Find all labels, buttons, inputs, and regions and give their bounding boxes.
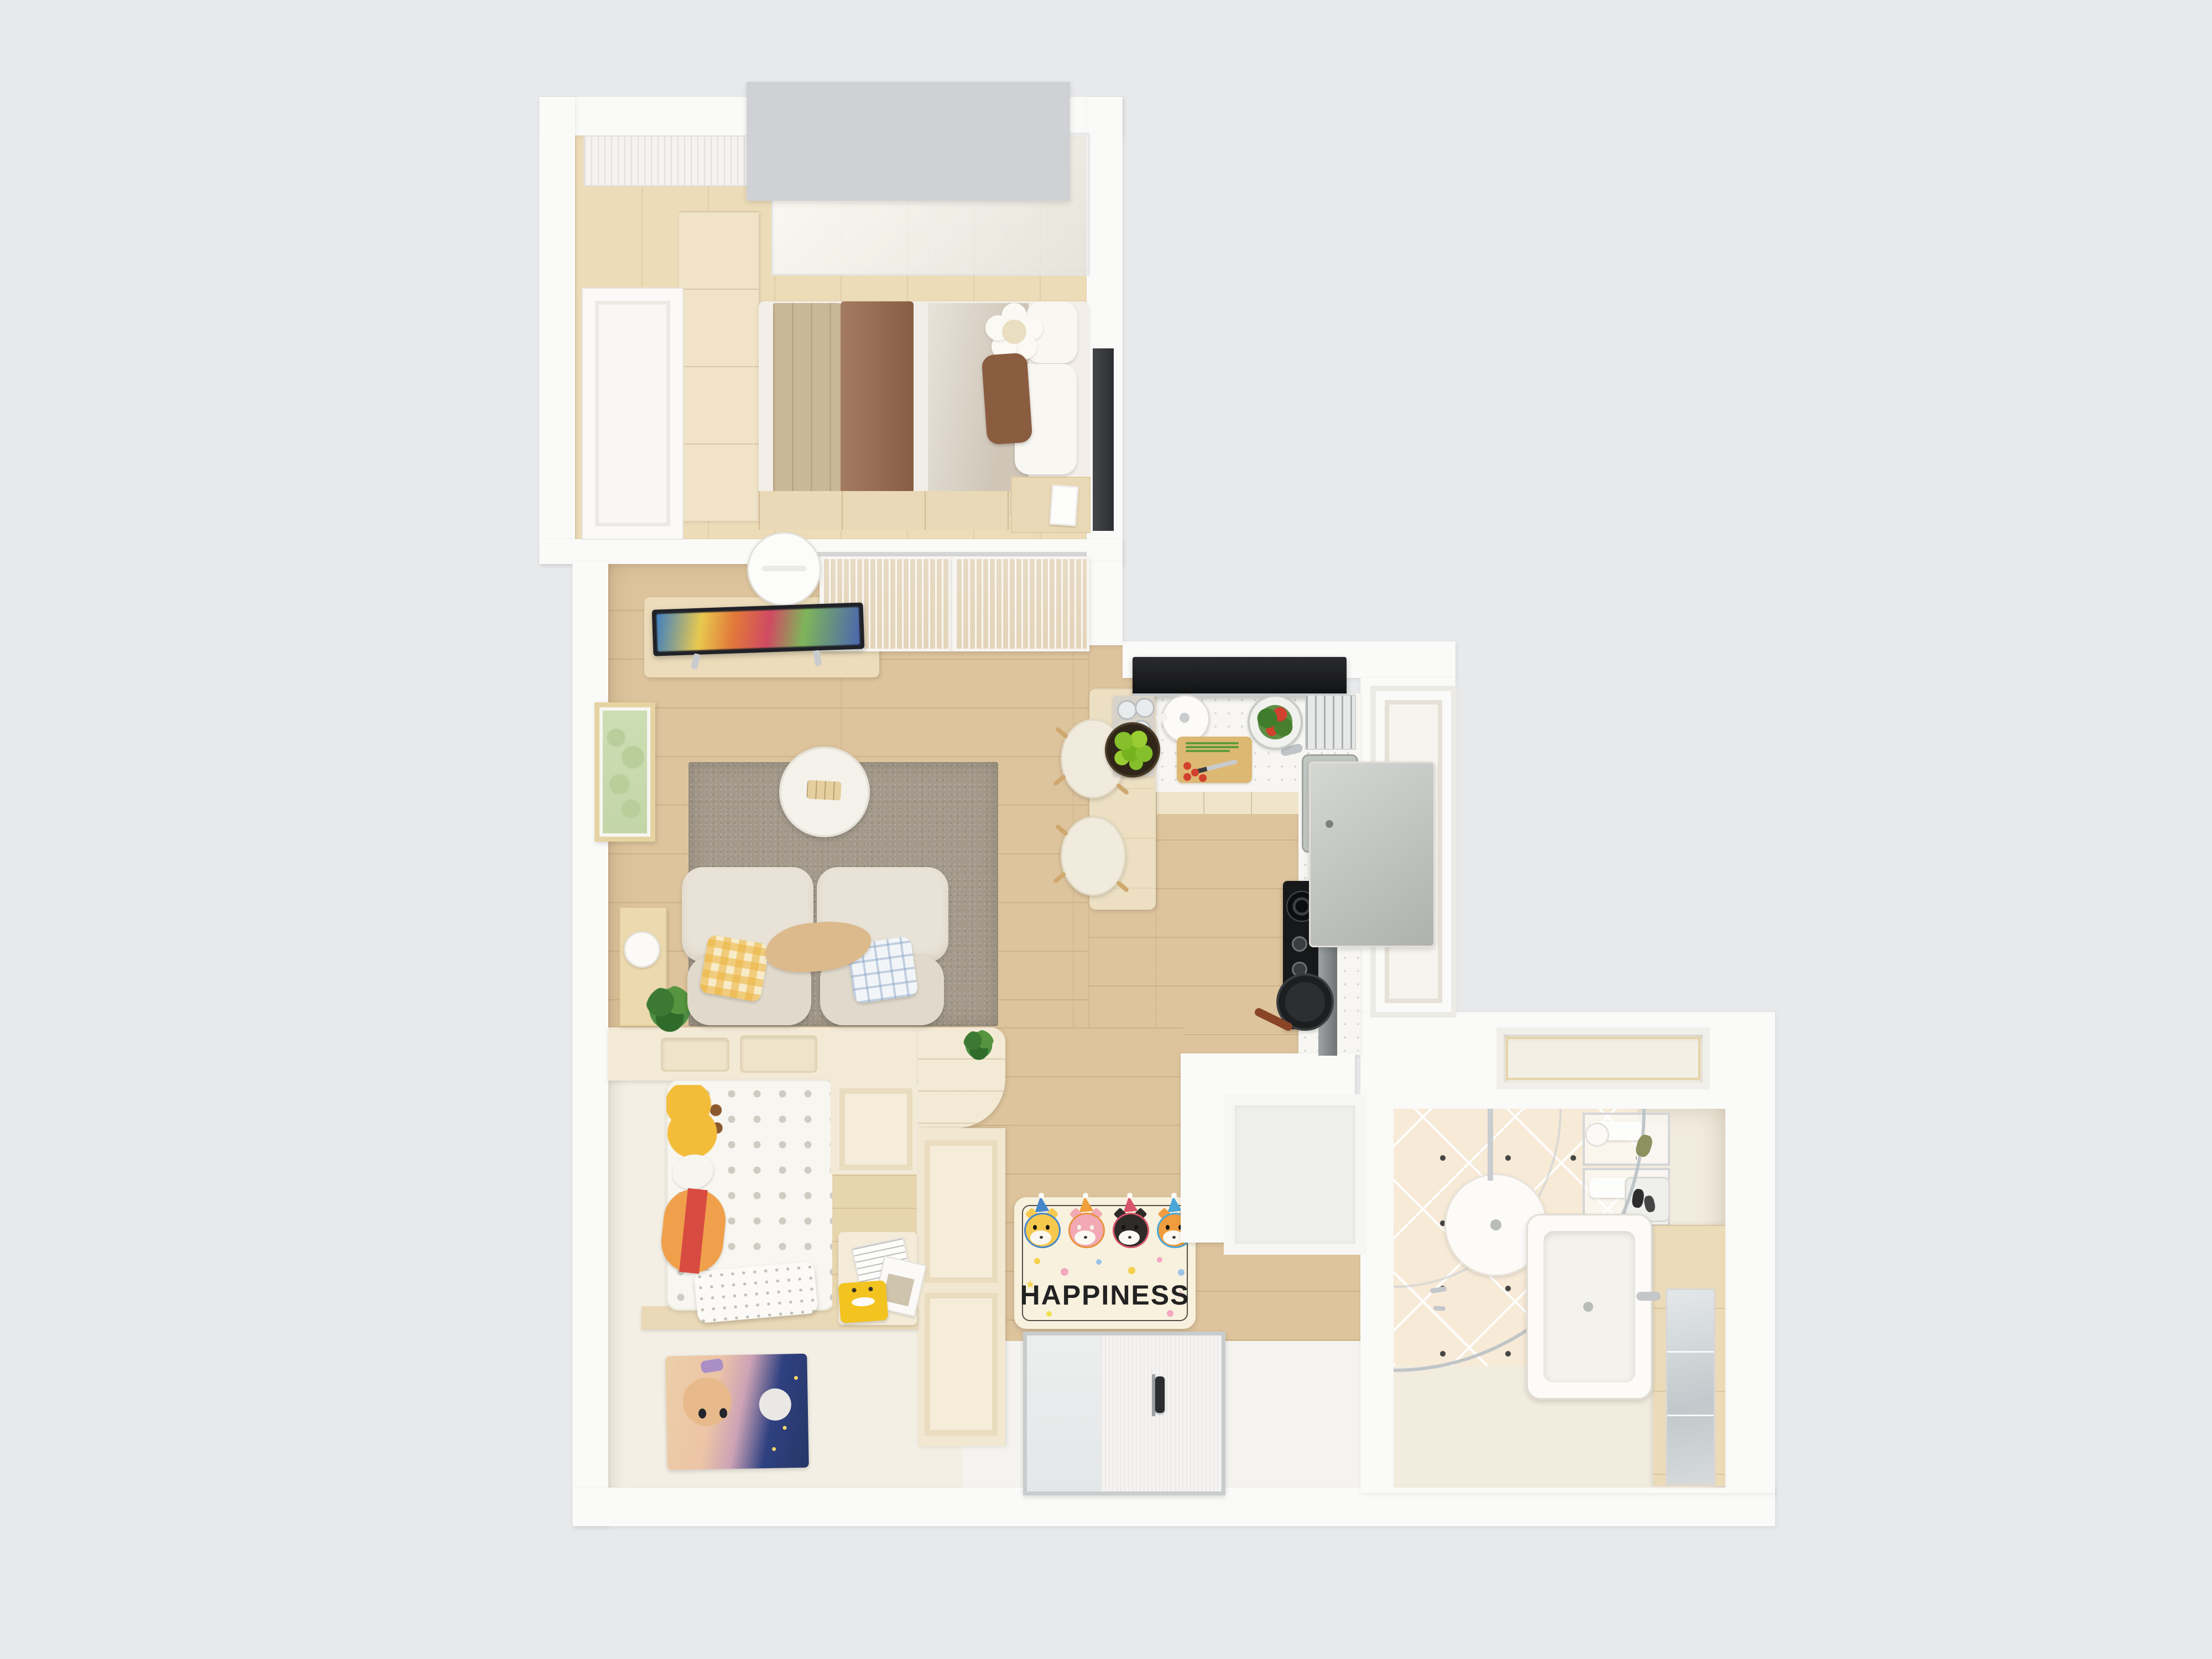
green-apples [1110,728,1155,772]
basin-drain [1583,1302,1593,1312]
confetti-dot [1096,1259,1102,1265]
bed-foot-drawers [759,491,1010,530]
cutting-board [1177,737,1252,783]
dish-rack [1305,695,1356,750]
bedroom-wall-tv [1093,348,1114,531]
skylight-rim [1506,1037,1700,1080]
scallion [1186,742,1239,744]
peninsula-panel [1224,1094,1366,1255]
shower-pipe [1488,1109,1493,1181]
magazine-photo [882,1274,914,1307]
bedside-cabinet [831,1079,917,1175]
cat-eye [1046,1225,1050,1230]
door-handle [1155,1376,1165,1413]
cat-nose [1128,1236,1131,1239]
cat-nose [1172,1236,1176,1239]
ac-vent [583,135,774,186]
cooktop-knob [1292,936,1307,952]
mat-cat-icon [1112,1205,1149,1251]
sconce-lamp [624,931,660,968]
rug-star [794,1376,798,1380]
wall-living-right-stub [1088,561,1123,645]
hat-pom [1171,1193,1177,1198]
rug-character-eye [719,1408,727,1418]
bedroom-door-panel [595,301,670,526]
kettle [1161,695,1210,743]
brown-lumbar-pillow [981,352,1032,445]
desk-tray [661,1037,729,1072]
rug-moon [759,1388,791,1421]
range-hood [1133,657,1347,697]
cherry-tomato [1191,769,1199,776]
cat-eye [1077,1225,1081,1230]
happiness-door-mat: ★ ★ HAPPINESS [1014,1197,1196,1329]
wall-bedroom-left [539,97,575,564]
scallion [1186,750,1230,752]
mirror-seam [1667,1351,1714,1353]
cherry-tomato [1199,774,1207,782]
wardrobe-door [925,1293,998,1436]
kids-pillow [693,1261,818,1324]
vegetable-bowl [1248,695,1303,750]
vegetables [1255,702,1295,742]
yellow-gingham-pillow [699,934,770,1003]
cat-eye [1134,1225,1138,1230]
confetti-dot [1061,1268,1068,1276]
cat-eye [1121,1225,1125,1230]
kitchen-floor [1156,791,1301,1055]
rug-character-eye [698,1408,706,1418]
ceiling-light [747,532,821,606]
cat-nose [1084,1236,1087,1239]
mirror-panel [1666,1288,1715,1485]
bed-sheet-fold [914,303,928,518]
cherry-tomato [1183,773,1191,781]
yellow-plush-toy [666,1085,724,1159]
hat-pom [1083,1193,1088,1198]
illustrated-play-rug [665,1354,809,1470]
shower-handle [1433,1306,1446,1311]
floorplan-stage: ★ ★ HAPPINESS [0,0,2212,1659]
plush-stripe [679,1188,708,1274]
potted-fern [646,985,693,1033]
cat-eye [1090,1225,1094,1230]
entry-corridor-floor-2 [1181,1242,1360,1343]
confetti-dot [1034,1258,1040,1264]
kitchen-knife-icon [1196,759,1238,774]
sink-drain [1326,820,1333,828]
toilet-paper-roll [1585,1123,1609,1147]
cherry-tomato [1183,762,1191,770]
mirror-seam [1667,1415,1714,1416]
sink-basin [1309,761,1435,947]
basin-faucet [1636,1292,1661,1301]
tissue-eye-icon [852,1288,857,1293]
kettle-lid [1180,713,1190,723]
front-door [1023,1332,1225,1495]
peninsula-cabinet [1181,1053,1355,1243]
ceiling-light-bar [762,566,806,571]
scallion [1186,746,1239,748]
tissue-slot [851,1297,875,1307]
front-door-leaf [1101,1335,1222,1491]
rug-character-bow [700,1358,724,1374]
mat-cat-icon [1067,1205,1105,1251]
flatscreen-tv [652,602,865,656]
botanical-art-print [594,702,655,842]
glass-cup [1117,700,1137,720]
wardrobe-door [925,1140,998,1283]
white-basin [1526,1214,1652,1400]
hat-pom [1127,1193,1133,1198]
shower-drain [1490,1219,1501,1230]
rug-star [772,1447,776,1451]
pan-inner [1285,982,1325,1022]
remote-control [806,780,842,800]
glass-cup [1135,698,1155,718]
confetti-dot [1128,1267,1135,1274]
skylight-recess [1496,1027,1710,1089]
tissue-eye-icon [868,1287,873,1292]
exterior-unit-slab [747,82,1070,201]
flower-pillow [985,303,1043,361]
confetti-dot [1157,1257,1162,1262]
desk-tray [740,1035,817,1073]
stainless-sink [1302,754,1358,853]
mat-cat-icon [1023,1205,1061,1251]
flower-center [1002,320,1026,344]
bedroom-wardrobe [679,211,759,521]
kitchen-cabinet-face [1156,792,1298,814]
rug-star [782,1426,786,1430]
cat-nose [1040,1236,1043,1239]
bed-runner-beige [773,303,841,518]
apple-bowl [1105,722,1160,778]
hat-pom [1039,1193,1044,1198]
rug-character-hair [677,1371,744,1439]
photo-frame [1050,484,1079,526]
mat-text: HAPPINESS [1014,1279,1196,1311]
tissue-box [838,1280,889,1323]
bedroom-door [582,288,684,540]
nightstand [1011,477,1091,533]
cat-eye [1033,1225,1037,1230]
tv-screen [656,607,860,652]
sliding-glass-panel [952,556,1089,651]
confetti-dot [1046,1311,1052,1317]
cabinet-panel [839,1088,912,1170]
kids-wardrobe [918,1128,1005,1446]
cat-eye [1166,1225,1170,1230]
bed-throw-brown [841,301,914,520]
art-leaves [603,711,647,833]
confetti-dot [1178,1269,1185,1276]
front-door-glass [1027,1335,1101,1491]
shelf-plant [963,1030,994,1061]
dining-chair [1061,816,1126,896]
